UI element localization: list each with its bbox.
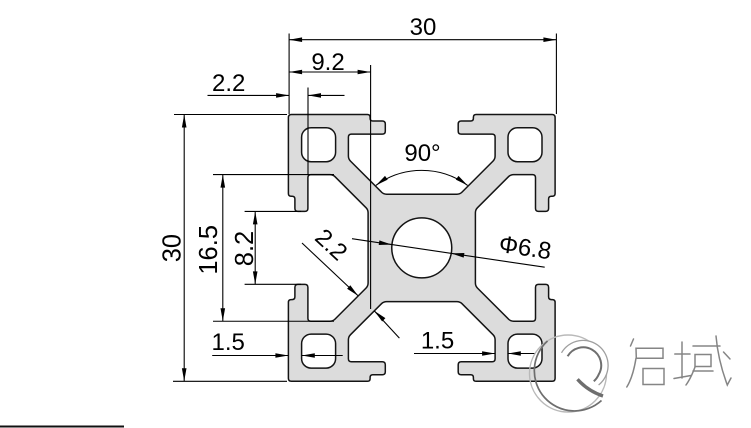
svg-text:90°: 90° bbox=[404, 140, 440, 167]
svg-text:Φ6.8: Φ6.8 bbox=[497, 231, 553, 265]
svg-text:1.5: 1.5 bbox=[212, 329, 245, 356]
svg-text:9.2: 9.2 bbox=[311, 49, 344, 76]
svg-text:8.2: 8.2 bbox=[231, 231, 259, 266]
svg-text:2.2: 2.2 bbox=[212, 70, 245, 97]
svg-text:30: 30 bbox=[410, 14, 437, 41]
svg-text:2.2: 2.2 bbox=[310, 224, 353, 267]
svg-text:1.5: 1.5 bbox=[421, 327, 454, 354]
svg-text:16.5: 16.5 bbox=[195, 225, 223, 275]
svg-text:30: 30 bbox=[158, 234, 186, 262]
